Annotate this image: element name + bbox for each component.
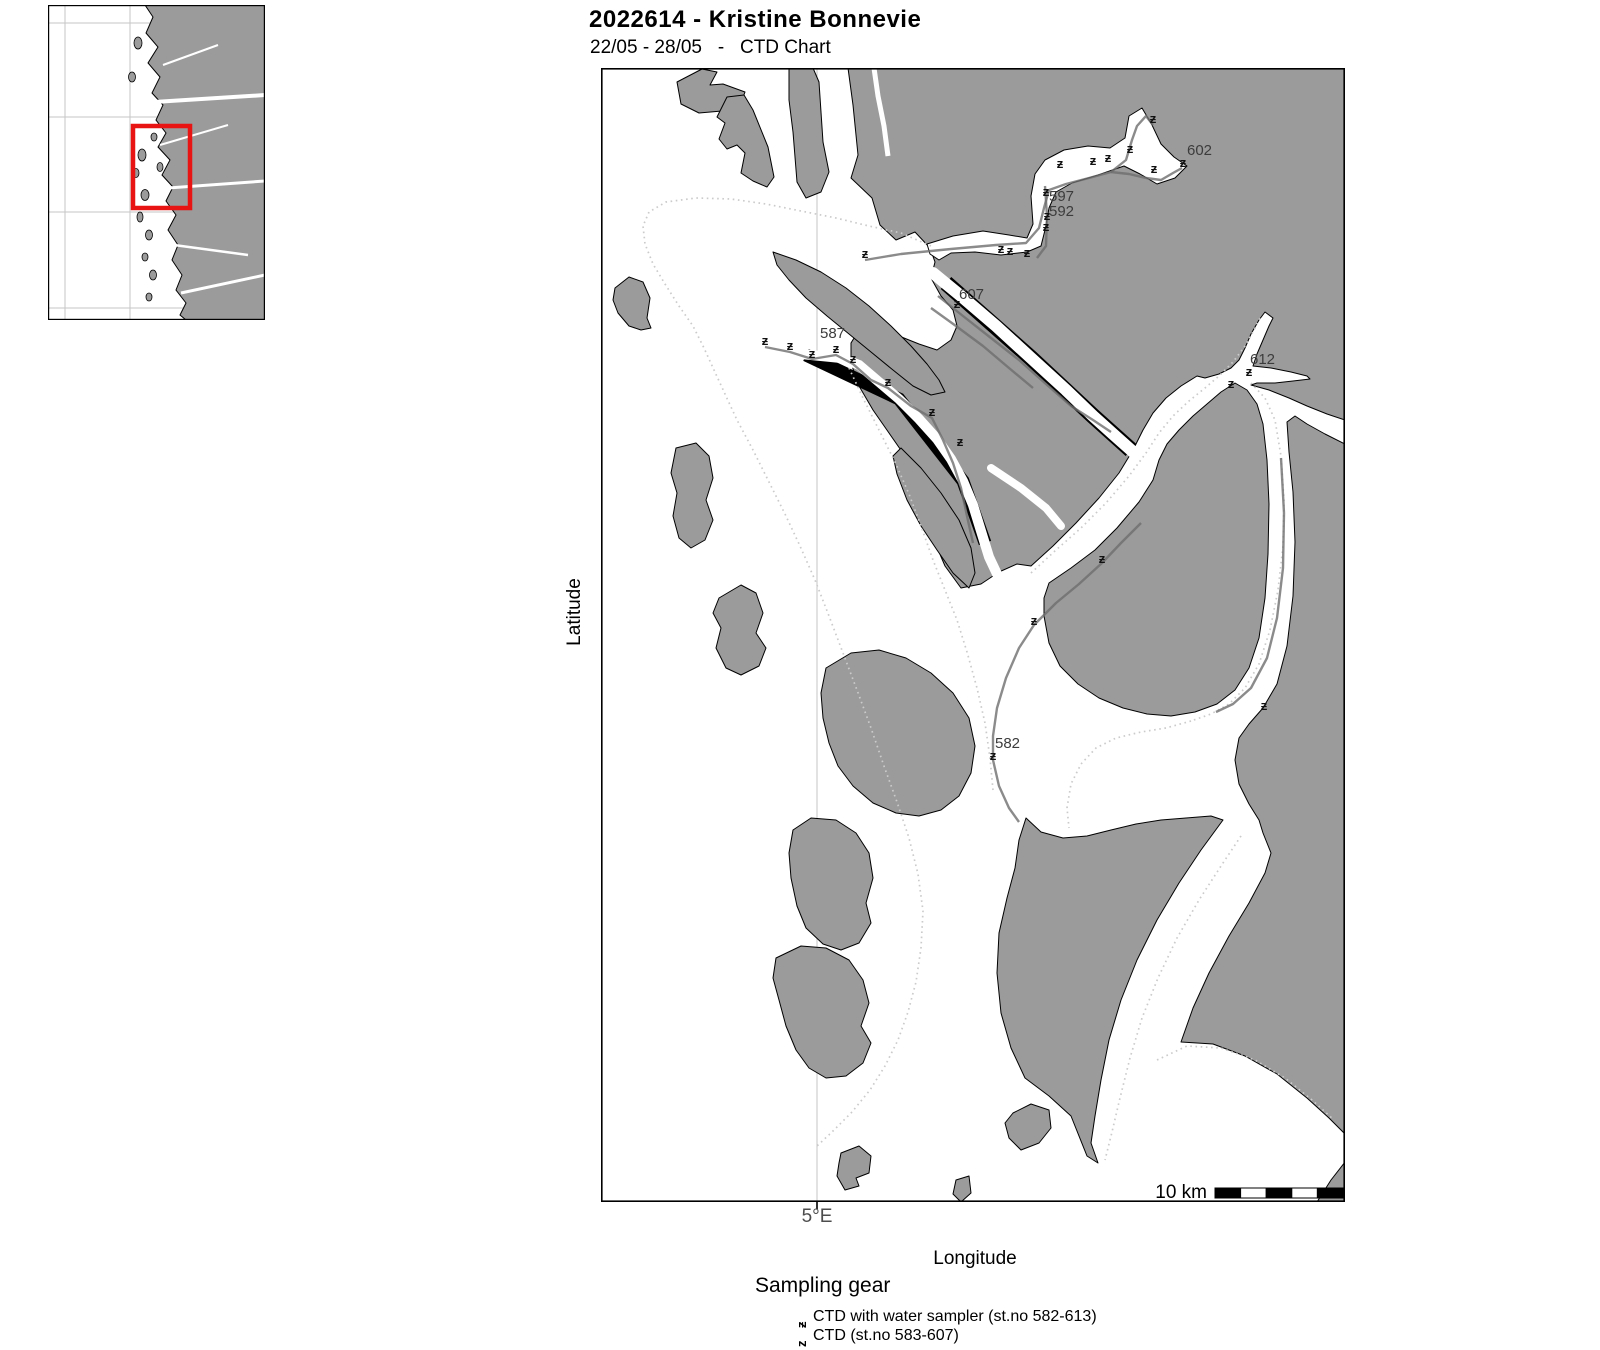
ctd-station-marker-icon: ƶ (998, 241, 1005, 256)
legend-item-label: CTD (st.no 583-607) (813, 1327, 959, 1345)
ctd-station-marker-icon: ƶ (1228, 376, 1235, 391)
x-axis-tick-label: 5°E (802, 1206, 833, 1228)
ctd-station-marker-icon: ƶ (1090, 153, 1097, 168)
station-number-label: 602 (1187, 142, 1212, 159)
ctd-station-marker-icon: ƶ (850, 351, 857, 366)
ctd-station-marker-icon: ƶ (1057, 156, 1064, 171)
legend-item-ctd-water-sampler: ƶ CTD with water sampler (st.no 582-613) (791, 1308, 1097, 1326)
ctd-station-marker-icon: ƶ (833, 341, 840, 356)
ctd-icon: z (793, 1325, 811, 1347)
ctd-station-marker-icon: ƶ (1150, 111, 1157, 126)
ctd-station-marker-icon: ƶ (929, 404, 936, 419)
ctd-station-marker-icon: ƶ (1180, 155, 1187, 170)
station-number-label: 612 (1250, 351, 1275, 368)
y-axis-label: Latitude (564, 578, 586, 646)
legend-item-ctd: z CTD (st.no 583-607) (791, 1327, 1097, 1345)
ctd-station-marker-icon: ƶ (1024, 245, 1031, 260)
ctd-station-marker-icon: ƶ (1007, 243, 1014, 258)
ctd-station-marker-icon: ƶ (1151, 161, 1158, 176)
ctd-station-marker-icon: ƶ (1261, 698, 1268, 713)
chart-subtitle: 22/05 - 28/05 - CTD Chart (590, 37, 831, 59)
legend: Sampling gear ƶ CTD with water sampler (… (755, 1274, 1097, 1345)
chart-title: 2022614 - Kristine Bonnevie (589, 6, 921, 34)
legend-item-label: CTD with water sampler (st.no 582-613) (813, 1308, 1097, 1326)
ctd-station-marker-icon: ƶ (1105, 150, 1112, 165)
legend-heading: Sampling gear (755, 1274, 1097, 1298)
station-number-label: 607 (959, 286, 984, 303)
station-number-label: 582 (995, 735, 1020, 752)
ctd-station-marker-icon: ƶ (862, 246, 869, 261)
ctd-station-marker-icon: ƶ (957, 434, 964, 449)
ctd-station-marker-icon: ƶ (1031, 613, 1038, 628)
ctd-station-marker-icon: ƶ (762, 333, 769, 348)
ctd-station-marker-icon: ƶ (1043, 219, 1050, 234)
ctd-station-marker-icon: ƶ (809, 346, 816, 361)
main-map: ƶƶƶƶƶƶƶƶƶƶƶƶƶƶƶƶƶƶƶƶƶƶƶƶƶƶƶƶƶ 6025975926… (601, 68, 1345, 1202)
ctd-chart-page: 2022614 - Kristine Bonnevie 22/05 - 28/0… (0, 0, 1600, 1350)
ctd-station-marker-icon: ƶ (787, 338, 794, 353)
station-number-label: 587 (820, 325, 845, 342)
station-number-label: 592 (1049, 203, 1074, 220)
overview-inset-map (48, 5, 265, 320)
ctd-station-marker-icon: ƶ (885, 374, 892, 389)
ctd-station-marker-icon: ƶ (1127, 141, 1134, 156)
x-axis-label: Longitude (933, 1248, 1016, 1270)
island-midwest-1 (671, 443, 713, 548)
scale-bar-label: 10 km (1155, 1182, 1207, 1202)
ctd-station-marker-icon: ƶ (1099, 551, 1106, 566)
